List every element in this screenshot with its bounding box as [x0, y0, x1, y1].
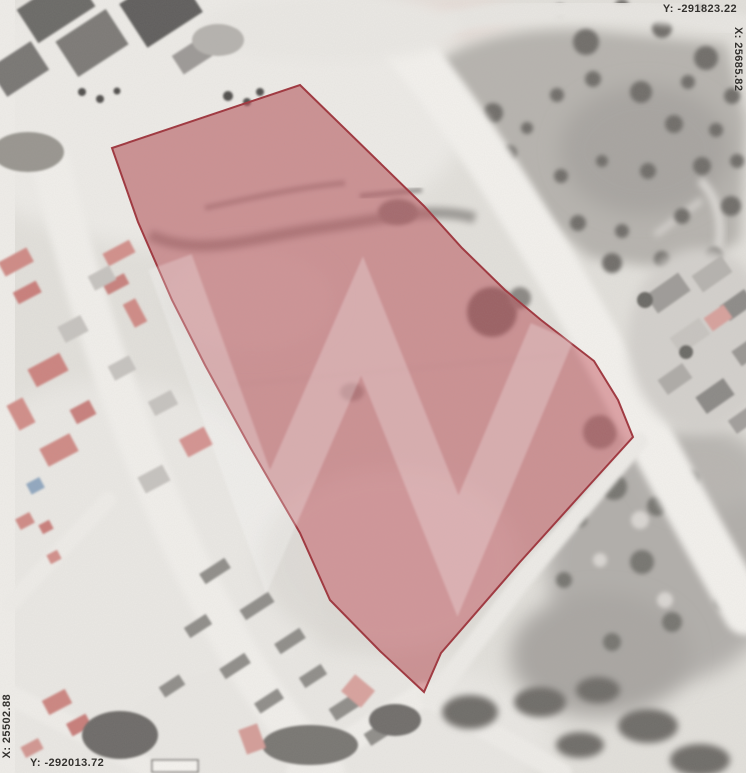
aerial-photo: [0, 0, 746, 773]
coordinate-label-bottom-left: Y: -292013.72: [30, 757, 104, 769]
coordinate-label-right-edge: X: 25685.82: [732, 27, 744, 91]
scan-grain: [0, 0, 746, 773]
cadastral-map-image: Y: -291823.22 X: 25685.82 X: 25502.88 Y:…: [0, 0, 746, 773]
coordinate-label-left-edge: X: 25502.88: [1, 694, 13, 758]
coordinate-label-top-right: Y: -291823.22: [663, 3, 737, 15]
